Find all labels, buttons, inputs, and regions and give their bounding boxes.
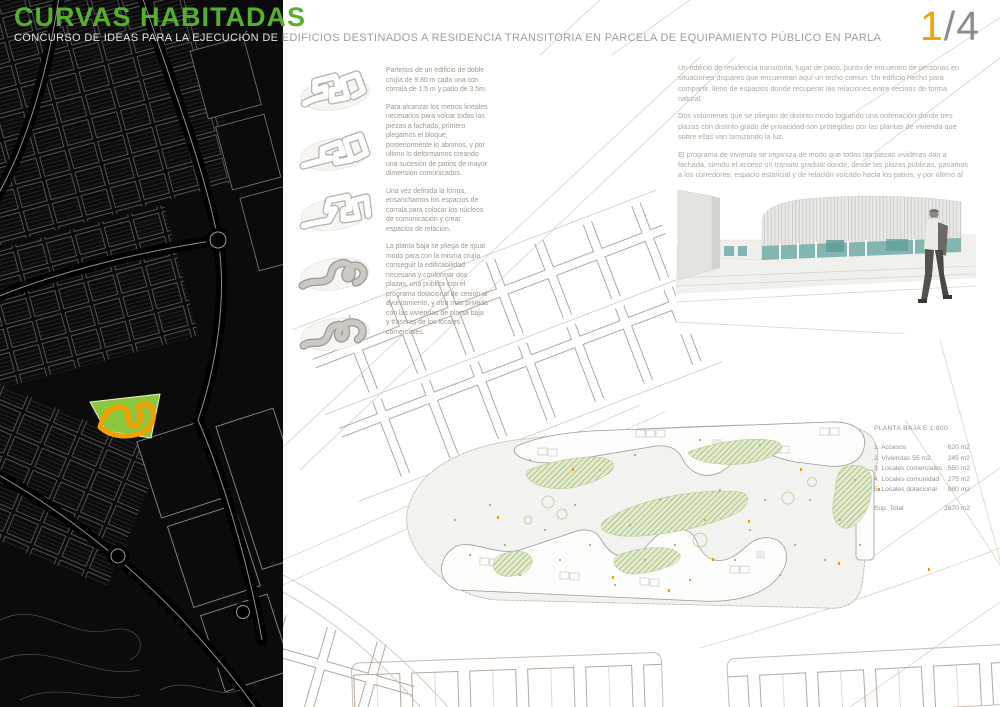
fold-diagram-step-5: [297, 306, 373, 354]
page-title: CURVAS HABITADAS: [14, 3, 881, 31]
area-total-label: Sup. Total: [874, 504, 904, 514]
folding-diagrams: [297, 66, 377, 366]
area-total-value: 2670 m2: [944, 504, 970, 514]
area-label: 5. Locales dotacional: [874, 485, 937, 495]
fold-diagram-step-2: [297, 126, 373, 174]
area-label: 3. Locales comerciales: [874, 464, 942, 474]
area-row: 3. Locales comerciales 550 m2: [874, 464, 970, 474]
building-render: [676, 182, 976, 334]
area-value: 245 m2: [948, 454, 970, 464]
area-value: 620 m2: [948, 443, 970, 453]
process-paragraph: La planta baja se pliega de igual modo p…: [386, 242, 489, 337]
page-number-current: 1: [920, 3, 944, 49]
fold-diagram-step-1: [297, 66, 373, 114]
process-paragraph: Partimos de un edificio de doble crujía …: [386, 66, 489, 95]
concept-paragraph: Dos volúmenes que se pliegan de distinto…: [678, 111, 970, 142]
area-row: 2. Viviendas 55 m2 245 m2: [874, 454, 970, 464]
area-row: 1. Accesos 620 m2: [874, 443, 970, 453]
process-paragraph: Para alcanzar los metros lineales necesa…: [386, 103, 489, 179]
areas-summary: PLANTA BAJA E 1:800 1. Accesos 620 m2 2.…: [874, 424, 970, 515]
page-number-total: /4: [944, 3, 980, 49]
city-map: [0, 0, 283, 707]
left-building-volume: [678, 190, 712, 280]
fold-diagram-step-4: [297, 246, 373, 294]
area-row: 4. Locales comunidad 275 m2: [874, 475, 970, 485]
area-label: 4. Locales comunidad: [874, 475, 939, 485]
area-value: 550 m2: [948, 464, 970, 474]
location-map-panel: [0, 0, 283, 707]
area-label: 2. Viviendas 55 m2: [874, 454, 931, 464]
process-paragraph: Una vez definida la forma, ensanchamos l…: [386, 187, 489, 235]
area-value: 275 m2: [948, 475, 970, 485]
subtitle-on-white: EDIFICIOS DESTINADOS A RESIDENCIA TRANSI…: [278, 32, 881, 44]
header: CURVAS HABITADAS CONCURSO DE IDEAS PARA …: [14, 3, 881, 44]
competition-board: CURVAS HABITADAS CONCURSO DE IDEAS PARA …: [0, 0, 1000, 707]
area-label: 1. Accesos: [874, 443, 906, 453]
subtitle-on-black: CONCURSO DE IDEAS PARA LA EJECUCIÓN DE: [14, 32, 278, 44]
process-description: Partimos de un edificio de doble crujía …: [386, 66, 489, 345]
area-value: 980 m2: [948, 485, 970, 495]
bottom-plot-blocks-right: [727, 643, 1000, 707]
fold-diagram-step-3: [297, 186, 373, 234]
area-total-row: Sup. Total 2670 m2: [874, 504, 970, 514]
area-row: 5. Locales dotacional 980 m2: [874, 485, 970, 495]
ground-floor-plan: [407, 422, 930, 608]
concept-paragraph: Un edificio de residencia transitoria, l…: [678, 63, 970, 104]
subtitle: CONCURSO DE IDEAS PARA LA EJECUCIÓN DE E…: [14, 32, 881, 44]
page-number: 1/4: [920, 6, 980, 47]
plan-scale-label: PLANTA BAJA E 1:800: [874, 424, 970, 434]
